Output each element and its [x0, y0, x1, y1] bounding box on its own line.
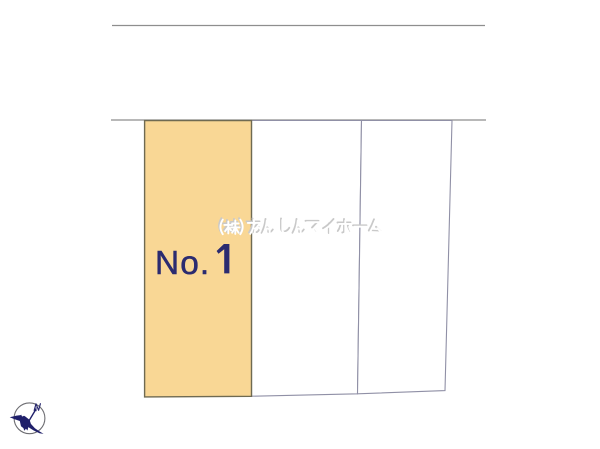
svg-text:No.: No.: [155, 245, 210, 282]
